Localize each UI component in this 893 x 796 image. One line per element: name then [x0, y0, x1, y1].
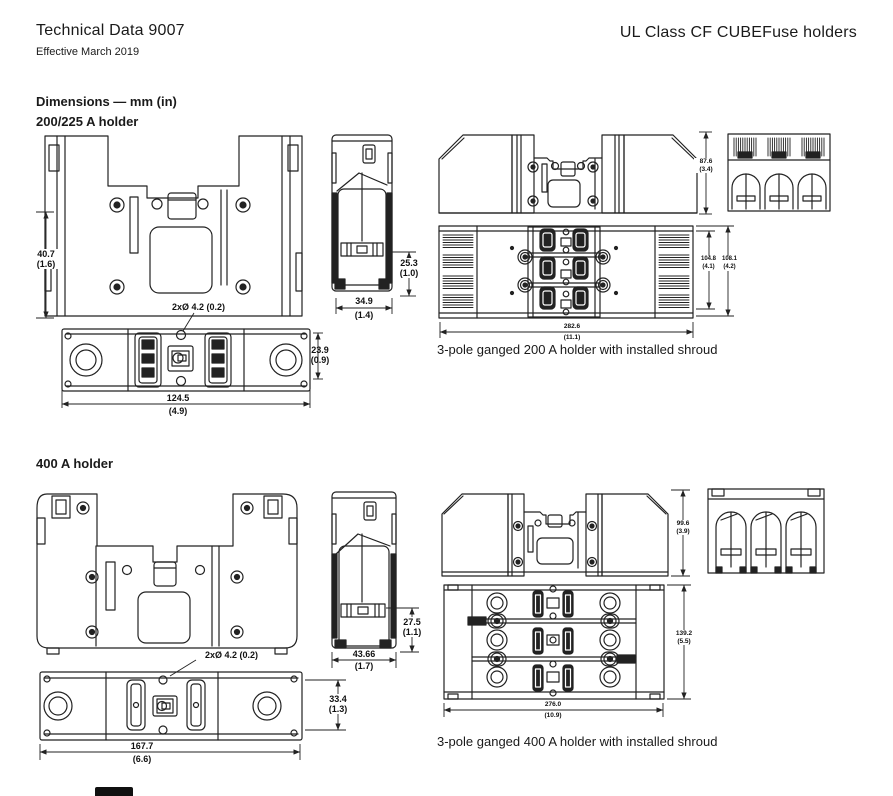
drawing-400-ganged-top-view — [442, 583, 666, 701]
dim-400-bottom-width-mm: 167.7 — [120, 741, 164, 751]
dim-200-ganged-width-in: (11.1) — [550, 334, 594, 342]
dim-400-side-width-mm: 43.66 — [344, 649, 384, 659]
holder400-heading: 400 A holder — [36, 456, 113, 471]
holder200-heading: 200/225 A holder — [36, 114, 138, 129]
dim-200-side-width-in: (1.4) — [346, 310, 382, 320]
drawing-400-ganged-front-view — [440, 488, 670, 578]
dim-200-side-slot: 25.3 (1.0) — [394, 258, 424, 278]
dim-200-front-height: 40.7 (1.6) — [32, 249, 60, 269]
dim-200-bottom-width-in: (4.9) — [158, 406, 198, 416]
dim-200-side-width-mm: 34.9 — [346, 296, 382, 306]
dim-400-bottom-width-in: (6.6) — [120, 754, 164, 764]
drawing-200-side-view — [325, 133, 399, 295]
dim-400-side-width-in: (1.7) — [344, 661, 384, 671]
footer-logo-partial — [95, 787, 133, 796]
dim-400-ganged-height: 99.6 (3.9) — [671, 520, 695, 535]
page-title: Technical Data 9007 — [36, 22, 185, 40]
drawing-200-ganged-top-view — [437, 224, 695, 320]
dim-200-bottom-depth: 23.9 (0.9) — [306, 345, 334, 365]
dim-400-ganged-depth: 139.2 (5.5) — [672, 630, 696, 645]
dim-200-ganged-width-mm: 282.6 — [550, 323, 594, 331]
drawing-200-front-view — [35, 133, 312, 319]
dim-400-bottom-depth: 33.4 (1.3) — [323, 694, 353, 714]
drawing-400-side-view — [328, 490, 400, 652]
hole-callout-400: 2xØ 4.2 (0.2) — [205, 650, 258, 660]
dim-400-side-slot: 27.5 (1.1) — [397, 617, 427, 637]
dim-400-ganged-width-mm: 276.0 — [530, 701, 576, 709]
drawing-400-ganged-end-view — [707, 487, 825, 577]
drawing-400-front-view — [33, 488, 301, 658]
hole-callout-200: 2xØ 4.2 (0.2) — [172, 302, 225, 312]
datasheet-page: Technical Data 9007 Effective March 2019… — [0, 0, 893, 796]
caption-400-ganged: 3-pole ganged 400 A holder with installe… — [437, 734, 717, 749]
drawing-200-ganged-front-view — [437, 129, 699, 215]
caption-200-ganged: 3-pole ganged 200 A holder with installe… — [437, 342, 717, 357]
dim-200-ganged-depth-outer: 108.1 (4.2) — [719, 256, 740, 271]
dimensions-heading: Dimensions — mm (in) — [36, 94, 177, 109]
drawing-200-ganged-end-view — [727, 132, 831, 213]
dim-200-ganged-depth-inner: 104.8 (4.1) — [698, 256, 719, 271]
drawing-200-bottom-view — [60, 324, 312, 396]
dim-400-ganged-width-in: (10.9) — [530, 712, 576, 720]
dim-200-ganged-height: 87.6 (3.4) — [694, 158, 718, 173]
drawing-400-bottom-view — [38, 668, 304, 744]
dim-200-bottom-width-mm: 124.5 — [158, 393, 198, 403]
effective-date: Effective March 2019 — [36, 46, 139, 58]
product-title: UL Class CF CUBEFuse holders — [620, 24, 857, 42]
